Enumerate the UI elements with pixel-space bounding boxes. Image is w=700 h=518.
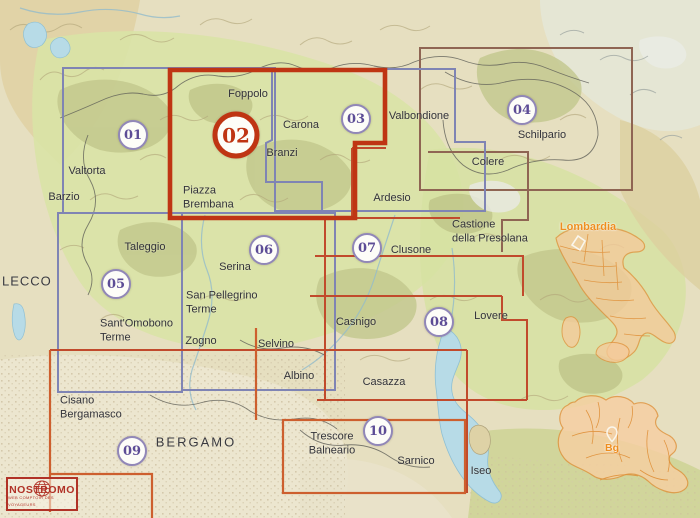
place-label-taleggio: Taleggio — [125, 240, 166, 254]
sheet-number: 08 — [430, 315, 448, 330]
sheet-circle-02[interactable]: 02 — [213, 112, 260, 159]
globe-icon — [29, 480, 55, 497]
place-label-trescore-balneario: Trescore Balneario — [309, 430, 355, 459]
place-label-clusone: Clusone — [391, 243, 431, 257]
sheet-circle-09[interactable]: 09 — [117, 436, 147, 466]
map-index-image: 01 02 03 04 05 06 07 08 09 10 Foppolo Ca… — [0, 0, 700, 518]
place-label-iseo: Iseo — [471, 464, 492, 478]
sheet-circle-03[interactable]: 03 — [341, 104, 371, 134]
sheet-circle-10[interactable]: 10 — [363, 416, 393, 446]
sheet-number: 03 — [347, 112, 365, 127]
place-label-sarnico: Sarnico — [397, 454, 434, 468]
city-label-bergamo: BERGAMO — [156, 435, 236, 450]
sheet-number: 01 — [124, 128, 142, 143]
inset-region-label: Lombardia — [560, 221, 616, 233]
place-label-castione-della-presolana: Castione della Presolana — [452, 218, 528, 247]
sheet-circle-05[interactable]: 05 — [101, 269, 131, 299]
sheet-circle-01[interactable]: 01 — [118, 120, 148, 150]
logo-tagline: WEB COMPTOIR DES VOYAGEURS — [8, 495, 76, 508]
place-label-piazza-brembana: Piazza Brembana — [183, 184, 234, 213]
sheet-number: 09 — [123, 444, 141, 459]
place-label-branzi: Branzi — [266, 146, 297, 160]
sheet-circle-08[interactable]: 08 — [424, 307, 454, 337]
place-label-casnigo: Casnigo — [336, 315, 376, 329]
place-label-lovere: Lovere — [474, 309, 508, 323]
place-label-valbondione: Valbondione — [389, 109, 449, 123]
sheet-number: 04 — [513, 103, 531, 118]
place-label-valtorta: Valtorta — [68, 164, 105, 178]
sheet-outline-orange — [50, 328, 465, 518]
sheet-number: 07 — [358, 241, 376, 256]
sheet-circle-07[interactable]: 07 — [352, 233, 382, 263]
place-label-foppolo: Foppolo — [228, 87, 268, 101]
nostromo-logo: NOSTROMO WEB COMPTOIR DES VOYAGEURS — [6, 477, 78, 511]
place-label-barzio: Barzio — [48, 190, 79, 204]
place-label-albino: Albino — [284, 369, 315, 383]
place-label-ardesio: Ardesio — [373, 191, 410, 205]
place-label-san-pellegrino-terme: San Pellegrino Terme — [186, 289, 258, 318]
place-label-cisano-bergamasco: Cisano Bergamasco — [60, 394, 122, 423]
sheet-number: 10 — [369, 424, 387, 439]
sheet-number: 06 — [255, 243, 273, 258]
place-label-selvino: Selvino — [258, 337, 294, 351]
sheet-number: 05 — [107, 277, 125, 292]
city-label-lecco: LECCO — [2, 274, 52, 289]
place-label-casazza: Casazza — [363, 375, 406, 389]
place-label-schilpario: Schilpario — [518, 128, 566, 142]
place-label-colere: Colere — [472, 155, 504, 169]
place-label-serina: Serina — [219, 260, 251, 274]
sheet-number: 02 — [222, 123, 250, 147]
inset-province-label: Bg — [605, 442, 619, 454]
place-label-sant-omobono-terme: Sant'Omobono Terme — [100, 317, 173, 346]
sheet-circle-06[interactable]: 06 — [249, 235, 279, 265]
sheet-circle-04[interactable]: 04 — [507, 95, 537, 125]
place-label-zogno: Zogno — [185, 334, 216, 348]
place-label-carona: Carona — [283, 118, 319, 132]
